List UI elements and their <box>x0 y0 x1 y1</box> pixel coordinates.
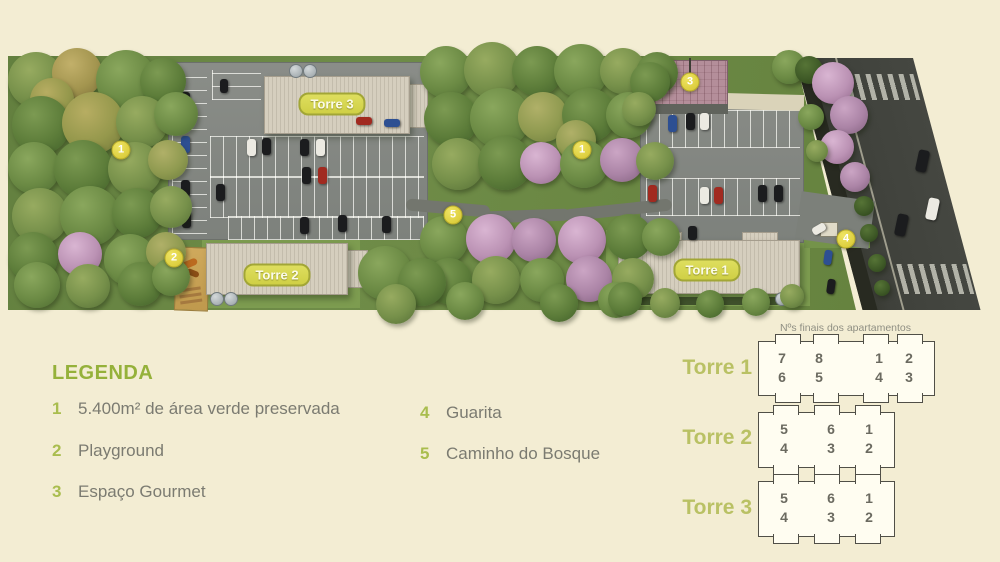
tree <box>696 290 724 318</box>
legend-item-number: 5 <box>420 444 438 464</box>
tree <box>806 140 828 162</box>
tree <box>622 92 656 126</box>
footprint-notch <box>773 405 799 415</box>
crosswalk-bottom <box>896 264 974 294</box>
map-marker-2: 2 <box>165 249 184 268</box>
torre-1-footprint-diagram: 76 85 14 23 <box>758 341 935 396</box>
parked-car <box>338 215 347 232</box>
torre-1-map-label: Torre 1 <box>673 259 740 282</box>
footprint-notch <box>855 474 881 484</box>
bush <box>874 280 890 296</box>
legend-item-text: Espaço Gourmet <box>78 482 206 502</box>
parked-car <box>356 117 372 125</box>
legend-item-text: 5.400m² de área verde preservada <box>78 399 340 419</box>
apartment-number-column: 54 <box>772 420 796 458</box>
tree <box>150 186 192 228</box>
map-marker-4: 4 <box>837 230 856 249</box>
tree <box>8 142 60 194</box>
footprint-notch <box>814 405 840 415</box>
flowering-tree <box>520 142 562 184</box>
parked-car <box>668 115 677 132</box>
bush <box>860 224 878 242</box>
parked-car <box>648 185 657 202</box>
footprint-notch <box>814 534 840 544</box>
parked-car <box>302 167 311 184</box>
legend-item-4: 4 Guarita <box>420 403 502 423</box>
tree <box>540 284 578 322</box>
parked-car <box>247 139 256 156</box>
legend-item-5: 5 Caminho do Bosque <box>420 444 600 464</box>
apartment-number-column: 14 <box>867 349 891 387</box>
apartment-number-column: 85 <box>807 349 831 387</box>
torre-2-diagram-label: Torre 2 <box>660 426 752 450</box>
flowering-tree <box>512 218 556 262</box>
torre-2-footprint-diagram: 54 63 12 <box>758 412 895 468</box>
tree <box>14 262 60 308</box>
map-marker-1: 1 <box>573 141 592 160</box>
parked-car <box>216 184 225 201</box>
footprint-notch <box>814 474 840 484</box>
parking-stalls <box>210 176 424 218</box>
parking-stalls <box>228 216 424 240</box>
legend-item-number: 4 <box>420 403 438 423</box>
parked-car <box>316 139 325 156</box>
footprint-notch <box>863 334 889 344</box>
footprint-notch <box>855 534 881 544</box>
parked-car <box>714 187 723 204</box>
sand-line <box>180 298 202 304</box>
tree <box>608 282 642 316</box>
parked-car <box>318 167 327 184</box>
water-tank <box>303 64 317 78</box>
legend-item-number: 1 <box>52 399 70 419</box>
legend-item-1: 1 5.400m² de área verde preservada <box>52 399 340 419</box>
footprint-notch <box>813 334 839 344</box>
site-plan-page: { "map": { "tower_pills": ["Torre 3", "T… <box>0 0 1000 562</box>
footprint-notch <box>775 393 801 403</box>
legend-item-3: 3 Espaço Gourmet <box>52 482 206 502</box>
parked-car <box>758 185 767 202</box>
parked-car <box>384 119 400 127</box>
tree <box>376 284 416 324</box>
apartment-number-column: 63 <box>819 489 843 527</box>
map-marker-3: 3 <box>681 73 700 92</box>
flowering-tree <box>840 162 870 192</box>
apartment-number-column: 54 <box>772 489 796 527</box>
apartment-number-column: 63 <box>819 420 843 458</box>
footprint-notch <box>773 474 799 484</box>
apartment-numbers-caption: Nºs finais dos apartamentos <box>758 322 933 334</box>
tree <box>446 282 484 320</box>
water-tank <box>289 64 303 78</box>
legend-item-text: Caminho do Bosque <box>446 444 600 464</box>
parked-car <box>300 217 309 234</box>
parked-car <box>700 187 709 204</box>
legend-item-number: 2 <box>52 441 70 461</box>
bush <box>854 196 874 216</box>
bush <box>868 254 886 272</box>
apartment-number-column: 23 <box>897 349 921 387</box>
apartment-number-column: 12 <box>857 420 881 458</box>
footprint-notch <box>897 334 923 344</box>
parked-car <box>220 79 228 93</box>
tree <box>432 138 484 190</box>
tree <box>420 216 468 264</box>
parked-car <box>382 216 391 233</box>
footprint-notch <box>855 405 881 415</box>
apartment-number-column: 76 <box>770 349 794 387</box>
site-plan-map: Torre 3 Torre 2 Torre 1 1 1 2 3 4 5 <box>0 0 1000 320</box>
torre-3-map-label: Torre 3 <box>298 93 365 116</box>
tree <box>780 284 804 308</box>
sand-line <box>179 292 201 298</box>
map-marker-5: 5 <box>444 206 463 225</box>
legend-item-text: Guarita <box>446 403 502 423</box>
parked-car <box>774 185 783 202</box>
tree <box>154 92 198 136</box>
parked-car <box>688 226 697 240</box>
legend-item-text: Playground <box>78 441 164 461</box>
torre-3-diagram-label: Torre 3 <box>660 496 752 520</box>
parked-car <box>686 113 695 130</box>
tree <box>650 288 680 318</box>
torre-2-map-label: Torre 2 <box>243 264 310 287</box>
legend-title: LEGENDA <box>52 362 153 385</box>
tree <box>742 288 770 316</box>
legend-item-number: 3 <box>52 482 70 502</box>
footprint-notch <box>813 393 839 403</box>
water-tank <box>224 292 238 306</box>
footprint-notch <box>863 393 889 403</box>
parked-car <box>700 113 709 130</box>
legend-item-2: 2 Playground <box>52 441 164 461</box>
terrace <box>724 93 804 111</box>
apartment-number-column: 12 <box>857 489 881 527</box>
tree <box>66 264 110 308</box>
map-marker-1: 1 <box>112 141 131 160</box>
footprint-notch <box>897 393 923 403</box>
flowering-tree <box>830 96 868 134</box>
tree <box>636 142 674 180</box>
parked-car <box>300 139 309 156</box>
torre-1-diagram-label: Torre 1 <box>660 356 752 380</box>
tree <box>642 218 680 256</box>
tree <box>148 140 188 180</box>
water-tank <box>210 292 224 306</box>
tree <box>798 104 824 130</box>
footprint-notch <box>775 334 801 344</box>
torre-3-footprint-diagram: 54 63 12 <box>758 481 895 537</box>
parked-car <box>262 138 271 155</box>
footprint-notch <box>773 534 799 544</box>
